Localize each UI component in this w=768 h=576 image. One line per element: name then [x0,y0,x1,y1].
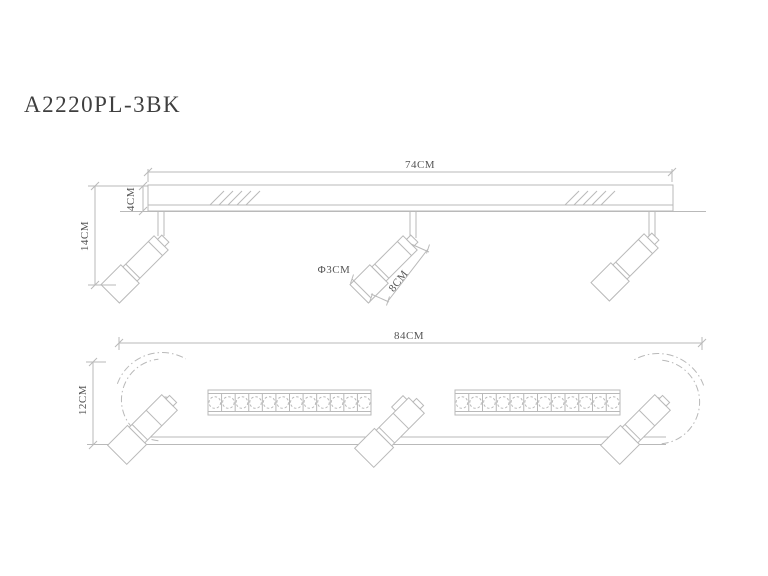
led-strip-left [208,390,371,415]
fixture-height-label: 14CM [79,221,91,251]
led-strip-right [455,390,620,415]
dimension-bar-width: 74CM [144,159,676,182]
overall-width-label: 84CM [394,330,424,342]
spot-stem-middle [410,211,416,238]
fixture-drawing: 74CM 4CM 14CM [0,0,768,576]
technical-drawing-page: A2220PL-3BK [0,0,768,576]
bar-width-label: 74CM [405,159,435,171]
fixture-depth-label: 12CM [77,385,89,415]
bar-height-label: 4CM [125,187,137,211]
head-diameter-label: Φ3CM [318,264,351,276]
spotlight-top-left [101,229,175,303]
top-view: 74CM 4CM 14CM [79,159,706,306]
spotlight-top-right [591,227,665,301]
spotlight-top-middle [350,229,424,303]
spot-stem-left [158,211,164,236]
spotlight-bottom-left [108,389,183,464]
dimension-bar-height: 4CM [125,182,147,215]
bottom-view: 84CM 12CM [77,330,706,467]
mounting-bar [148,185,673,211]
dimension-fixture-depth: 12CM [77,358,106,449]
dimension-overall-width: 84CM [115,330,706,350]
